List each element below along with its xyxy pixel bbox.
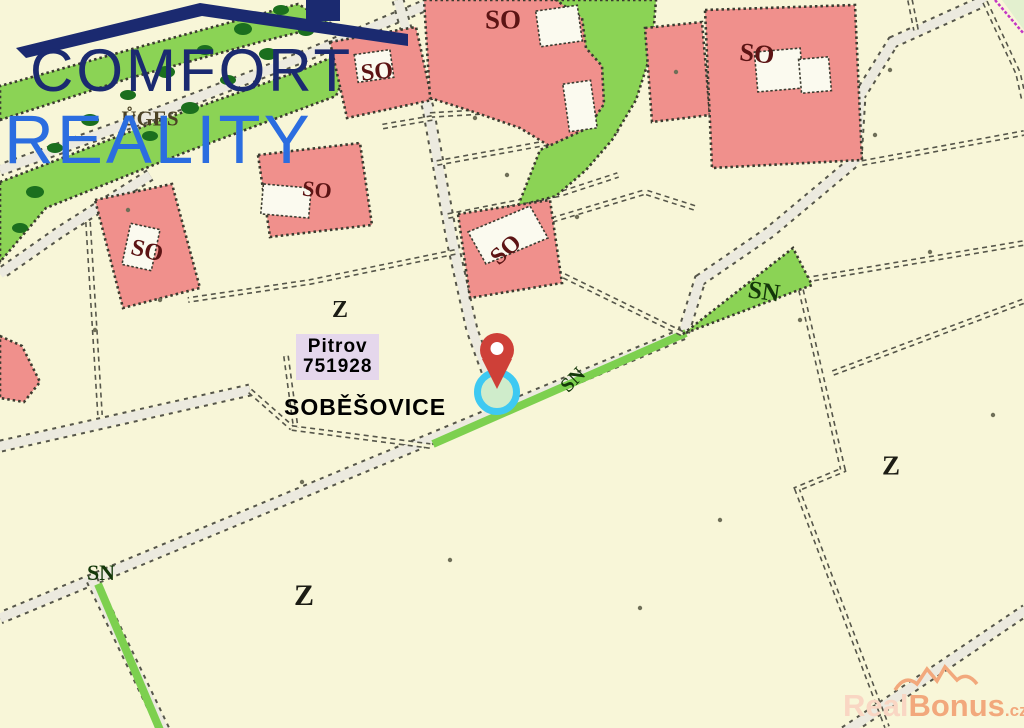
watermark-real: Real: [843, 688, 908, 723]
parcel-number: 751928: [303, 357, 372, 377]
map-zone-label-so: SO: [129, 235, 166, 266]
map-zone-label-so: SO: [738, 39, 775, 68]
agency-logo: COMFORT REALITY: [0, 0, 420, 185]
logo-text-comfort: COMFORT: [30, 36, 353, 105]
map-zone-label-sn: SN: [557, 364, 589, 396]
map-zone-label-z: Z: [294, 581, 314, 611]
map-zone-label-sn: SN: [746, 277, 781, 306]
location-marker: [457, 322, 537, 422]
parcel-name: Pitrov: [303, 337, 372, 357]
logo-text-reality: REALITY: [4, 100, 313, 179]
place-name-label: SOBĚŠOVICE: [284, 394, 446, 421]
portal-watermark: RealBonus.cz: [843, 660, 1023, 726]
watermark-bonus: Bonus: [908, 688, 1004, 723]
watermark-tld: .cz: [1005, 701, 1024, 720]
listing-map-image: SOSOSOSOSOSOZZZSNSNSNŮGES Pitrov 751928 …: [0, 0, 1024, 728]
watermark-text: RealBonus.cz: [843, 688, 1024, 724]
parcel-label: Pitrov 751928: [296, 334, 379, 380]
map-zone-label-so: SO: [485, 7, 521, 34]
map-zone-label-z: Z: [882, 453, 900, 480]
map-zone-label-z: Z: [332, 298, 348, 322]
map-zone-label-so: SO: [486, 230, 526, 269]
map-zone-label-sn: SN: [87, 562, 115, 584]
